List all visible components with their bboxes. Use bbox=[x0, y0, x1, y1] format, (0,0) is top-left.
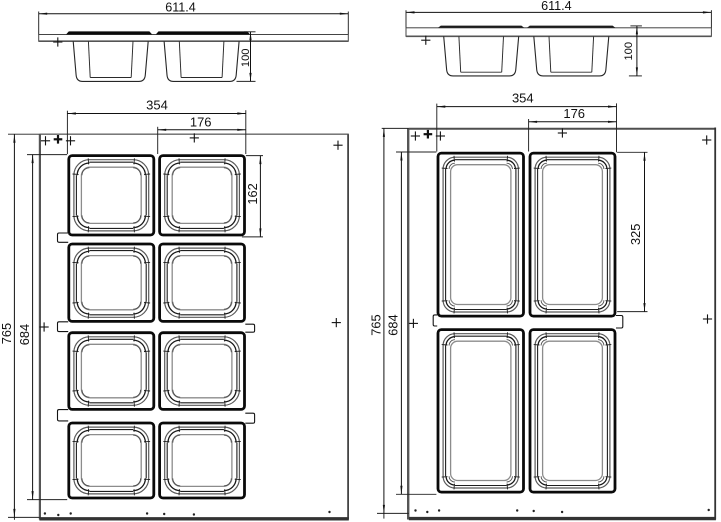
svg-text:100: 100 bbox=[623, 42, 635, 61]
svg-text:354: 354 bbox=[512, 91, 534, 106]
svg-text:684: 684 bbox=[385, 314, 400, 335]
svg-text:100: 100 bbox=[240, 48, 252, 67]
svg-text:611.4: 611.4 bbox=[165, 0, 196, 14]
svg-text:765: 765 bbox=[0, 323, 14, 344]
svg-text:765: 765 bbox=[369, 314, 384, 335]
svg-text:354: 354 bbox=[146, 98, 168, 113]
svg-text:684: 684 bbox=[17, 324, 32, 345]
svg-text:176: 176 bbox=[190, 114, 212, 129]
svg-text:162: 162 bbox=[245, 183, 260, 204]
svg-text:176: 176 bbox=[563, 106, 585, 121]
svg-text:325: 325 bbox=[628, 224, 643, 245]
svg-text:611.4: 611.4 bbox=[541, 0, 572, 13]
